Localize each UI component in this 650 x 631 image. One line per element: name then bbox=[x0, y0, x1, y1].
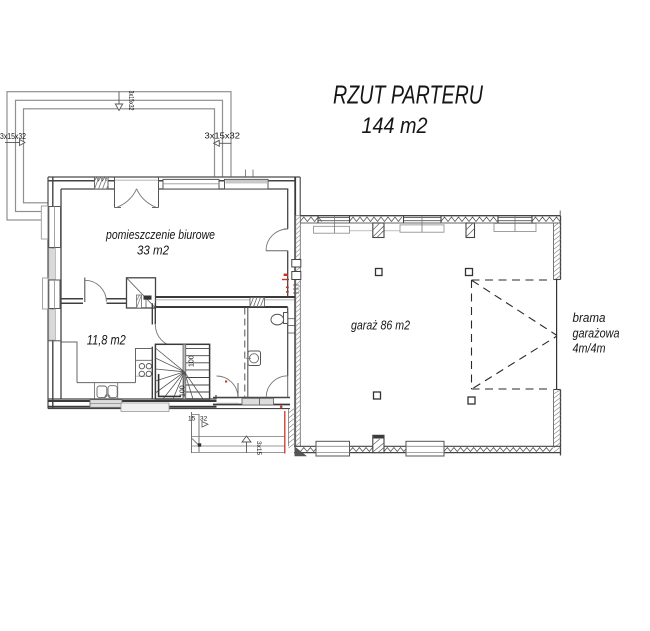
svg-text:pomieszczenie biurowe: pomieszczenie biurowe bbox=[105, 227, 215, 242]
svg-text:3x15: 3x15 bbox=[255, 441, 262, 455]
svg-text:RZUT PARTERU: RZUT PARTERU bbox=[333, 80, 483, 110]
svg-text:100: 100 bbox=[189, 355, 196, 367]
svg-text:11,8 m2: 11,8 m2 bbox=[87, 333, 126, 348]
svg-text:144 m2: 144 m2 bbox=[362, 113, 428, 138]
svg-text:brama: brama bbox=[573, 310, 606, 325]
svg-text:3x15x32: 3x15x32 bbox=[205, 131, 241, 140]
svg-text:3x15x32: 3x15x32 bbox=[0, 132, 26, 141]
svg-text:4m/4m: 4m/4m bbox=[573, 341, 606, 356]
svg-text:100: 100 bbox=[180, 385, 187, 397]
svg-text:garaż 86 m2: garaż 86 m2 bbox=[351, 318, 411, 333]
svg-text:33 m2: 33 m2 bbox=[137, 243, 170, 258]
svg-text:3x15x32: 3x15x32 bbox=[127, 91, 134, 111]
svg-text:15: 15 bbox=[188, 416, 196, 423]
svg-text:32: 32 bbox=[200, 416, 208, 423]
svg-text:garażowa: garażowa bbox=[573, 326, 620, 341]
